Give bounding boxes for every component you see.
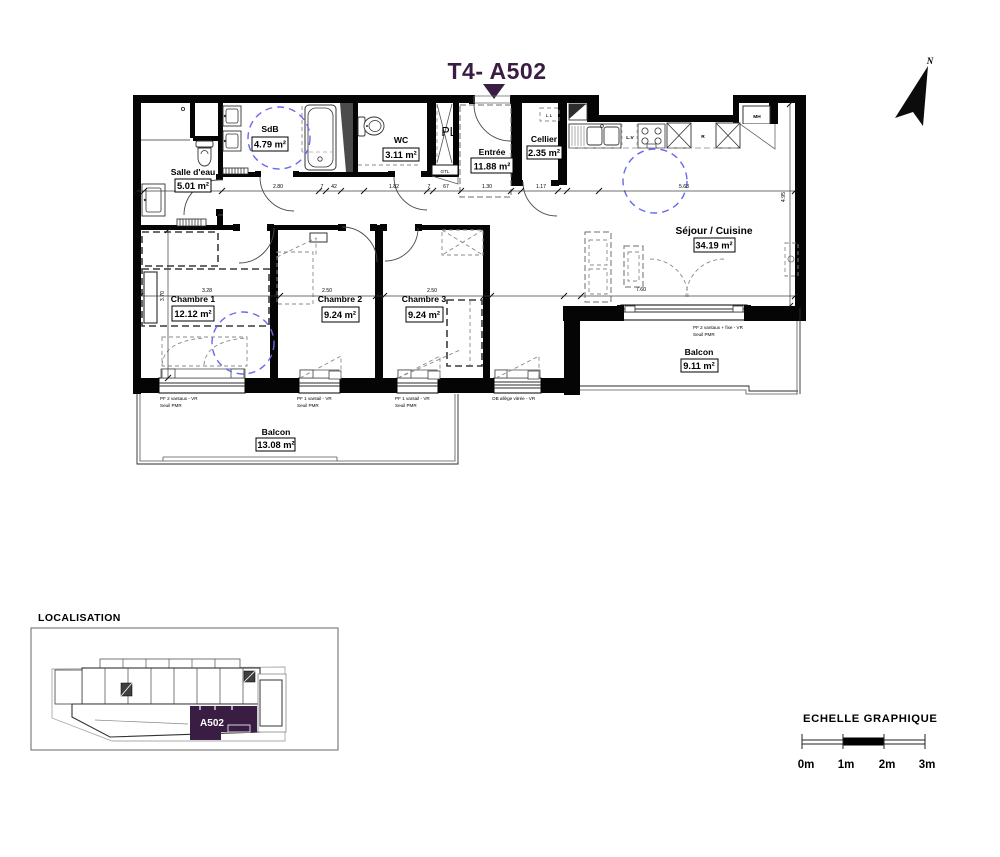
svg-text:7: 7: [321, 184, 324, 190]
svg-text:PF 1 vantail - VR: PF 1 vantail - VR: [297, 396, 332, 401]
svg-text:3.11 m²: 3.11 m²: [385, 150, 417, 160]
svg-text:67: 67: [443, 184, 449, 190]
svg-text:5.63: 5.63: [679, 184, 689, 190]
svg-text:Chambre 1: Chambre 1: [171, 294, 216, 304]
svg-text:1.17: 1.17: [536, 184, 546, 190]
svg-text:12.12 m²: 12.12 m²: [174, 309, 211, 319]
svg-text:3m: 3m: [919, 759, 936, 771]
svg-text:WC: WC: [394, 135, 408, 145]
svg-text:Cellier: Cellier: [531, 134, 558, 144]
svg-text:2m: 2m: [879, 759, 896, 771]
svg-text:9.11 m²: 9.11 m²: [683, 361, 715, 371]
svg-text:7: 7: [428, 184, 431, 190]
svg-text:Chambre 3: Chambre 3: [402, 294, 447, 304]
svg-text:Balcon: Balcon: [685, 347, 714, 357]
svg-text:2.35 m²: 2.35 m²: [528, 148, 560, 158]
svg-text:PF 2 vantaux + fixe - VR: PF 2 vantaux + fixe - VR: [693, 325, 744, 330]
svg-text:Balcon: Balcon: [262, 427, 291, 437]
svg-text:42: 42: [331, 184, 337, 190]
svg-text:2.80: 2.80: [273, 184, 283, 190]
svg-text:11.88 m²: 11.88 m²: [474, 162, 511, 172]
svg-text:5.01 m²: 5.01 m²: [177, 181, 209, 191]
svg-text:34.19 m²: 34.19 m²: [695, 241, 732, 251]
svg-text:SdB: SdB: [261, 124, 278, 134]
svg-text:PF 1 vantail - VR: PF 1 vantail - VR: [395, 396, 430, 401]
svg-text:Séjour / Cuisine: Séjour / Cuisine: [676, 226, 753, 237]
svg-text:7.60: 7.60: [636, 287, 646, 293]
svg-text:3.70: 3.70: [160, 291, 166, 301]
svg-text:L.L: L.L: [546, 113, 553, 118]
svg-text:Chambre 2: Chambre 2: [318, 294, 363, 304]
svg-text:OB allège vitrée - VR: OB allège vitrée - VR: [492, 396, 536, 401]
svg-text:LOCALISATION: LOCALISATION: [38, 612, 121, 624]
svg-text:0m: 0m: [798, 759, 815, 771]
svg-text:4.79 m²: 4.79 m²: [254, 140, 286, 150]
svg-text:9.24 m²: 9.24 m²: [324, 310, 356, 320]
svg-text:9.24 m²: 9.24 m²: [408, 310, 440, 320]
svg-text:Entrée: Entrée: [479, 147, 506, 157]
svg-text:Seuil PMR: Seuil PMR: [160, 403, 182, 408]
svg-text:MH: MH: [753, 114, 761, 120]
svg-text:L.V: L.V: [626, 135, 634, 141]
svg-text:7: 7: [139, 184, 142, 190]
svg-text:GTL: GTL: [441, 169, 450, 174]
svg-text:1.82: 1.82: [389, 184, 399, 190]
svg-text:PL: PL: [441, 125, 456, 139]
svg-text:T4- A502: T4- A502: [447, 58, 546, 84]
svg-text:Salle d'eau: Salle d'eau: [171, 167, 216, 177]
svg-text:4.95: 4.95: [781, 192, 787, 202]
svg-text:Seuil PMR: Seuil PMR: [297, 403, 319, 408]
svg-text:Seuil PMR: Seuil PMR: [693, 332, 715, 337]
svg-text:1m: 1m: [838, 759, 855, 771]
svg-text:Seuil PMR: Seuil PMR: [395, 403, 417, 408]
svg-text:A502: A502: [200, 718, 224, 729]
svg-text:N: N: [926, 56, 934, 66]
svg-text:R: R: [701, 134, 705, 140]
svg-text:13.08 m²: 13.08 m²: [257, 440, 294, 450]
svg-text:ECHELLE GRAPHIQUE: ECHELLE GRAPHIQUE: [803, 713, 937, 725]
svg-text:PF 2 vantaux - VR: PF 2 vantaux - VR: [160, 396, 198, 401]
svg-text:1.30: 1.30: [482, 184, 492, 190]
